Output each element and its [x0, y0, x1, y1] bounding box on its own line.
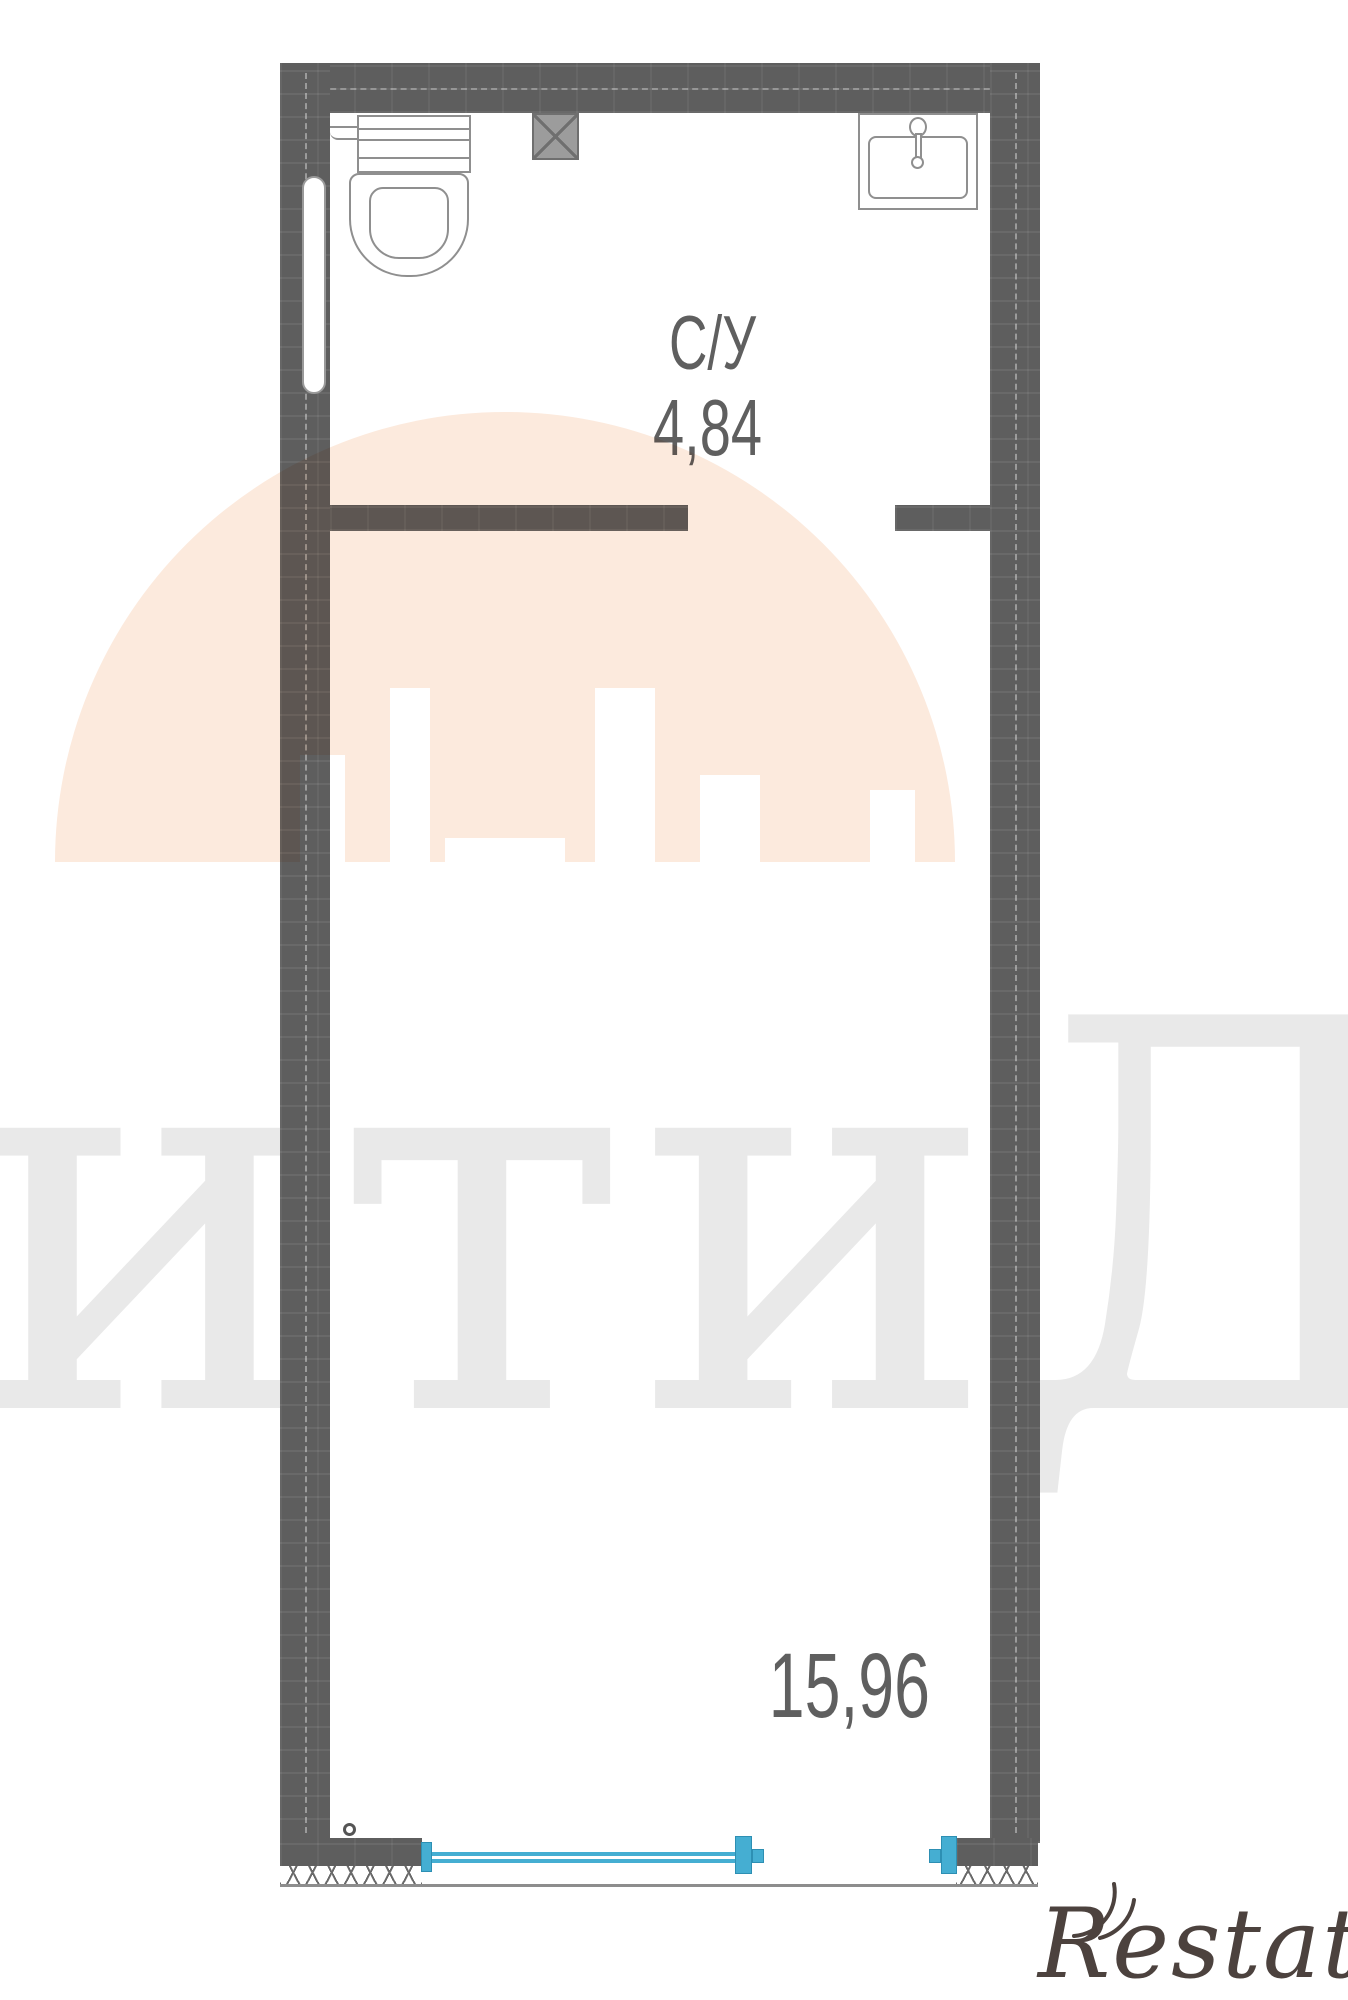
- toilet-tank-line1: [359, 128, 469, 130]
- faucet-dot: [911, 156, 924, 169]
- area-label-living: 15,96: [769, 1640, 927, 1732]
- toilet-tank-line2: [359, 139, 469, 141]
- toilet-tank: [357, 115, 471, 173]
- balcony-door-opening: [764, 1840, 929, 1874]
- window-mullion-left: [735, 1836, 752, 1874]
- right-wall: [990, 63, 1040, 1843]
- hatch-left: [280, 1866, 422, 1886]
- top-wall-joint-line: [290, 88, 1030, 90]
- divider-wall-right: [895, 505, 990, 531]
- floor-plan: С/У 4,84 15,96: [0, 0, 1348, 2000]
- window-mullion-right: [941, 1836, 957, 1874]
- logo-text: Restate: [1038, 1896, 1348, 1992]
- window-handle-right: [929, 1849, 941, 1863]
- room-label-bathroom: С/У: [655, 306, 771, 382]
- pier-left: [280, 1838, 422, 1868]
- radiator-icon: [302, 176, 326, 394]
- pier-right: [956, 1838, 1038, 1868]
- top-wall: [280, 63, 1040, 113]
- toilet-bowl-inner: [369, 187, 449, 259]
- restate-logo: Restate: [1030, 1878, 1348, 2000]
- toilet-tank-line3: [359, 157, 469, 159]
- door-axis-ring: [343, 1823, 356, 1836]
- bathroom-door-opening: [688, 505, 895, 531]
- window-end-post: [421, 1842, 432, 1872]
- hatch-right: [956, 1866, 1038, 1886]
- ground-line: [280, 1884, 1038, 1887]
- window-handle-left: [752, 1849, 764, 1863]
- window-sill: [432, 1852, 735, 1863]
- vent-shaft-icon: [532, 113, 579, 160]
- divider-wall-left: [330, 505, 688, 531]
- area-label-bathroom: 4,84: [643, 388, 773, 468]
- right-wall-axis-line: [1015, 73, 1017, 1833]
